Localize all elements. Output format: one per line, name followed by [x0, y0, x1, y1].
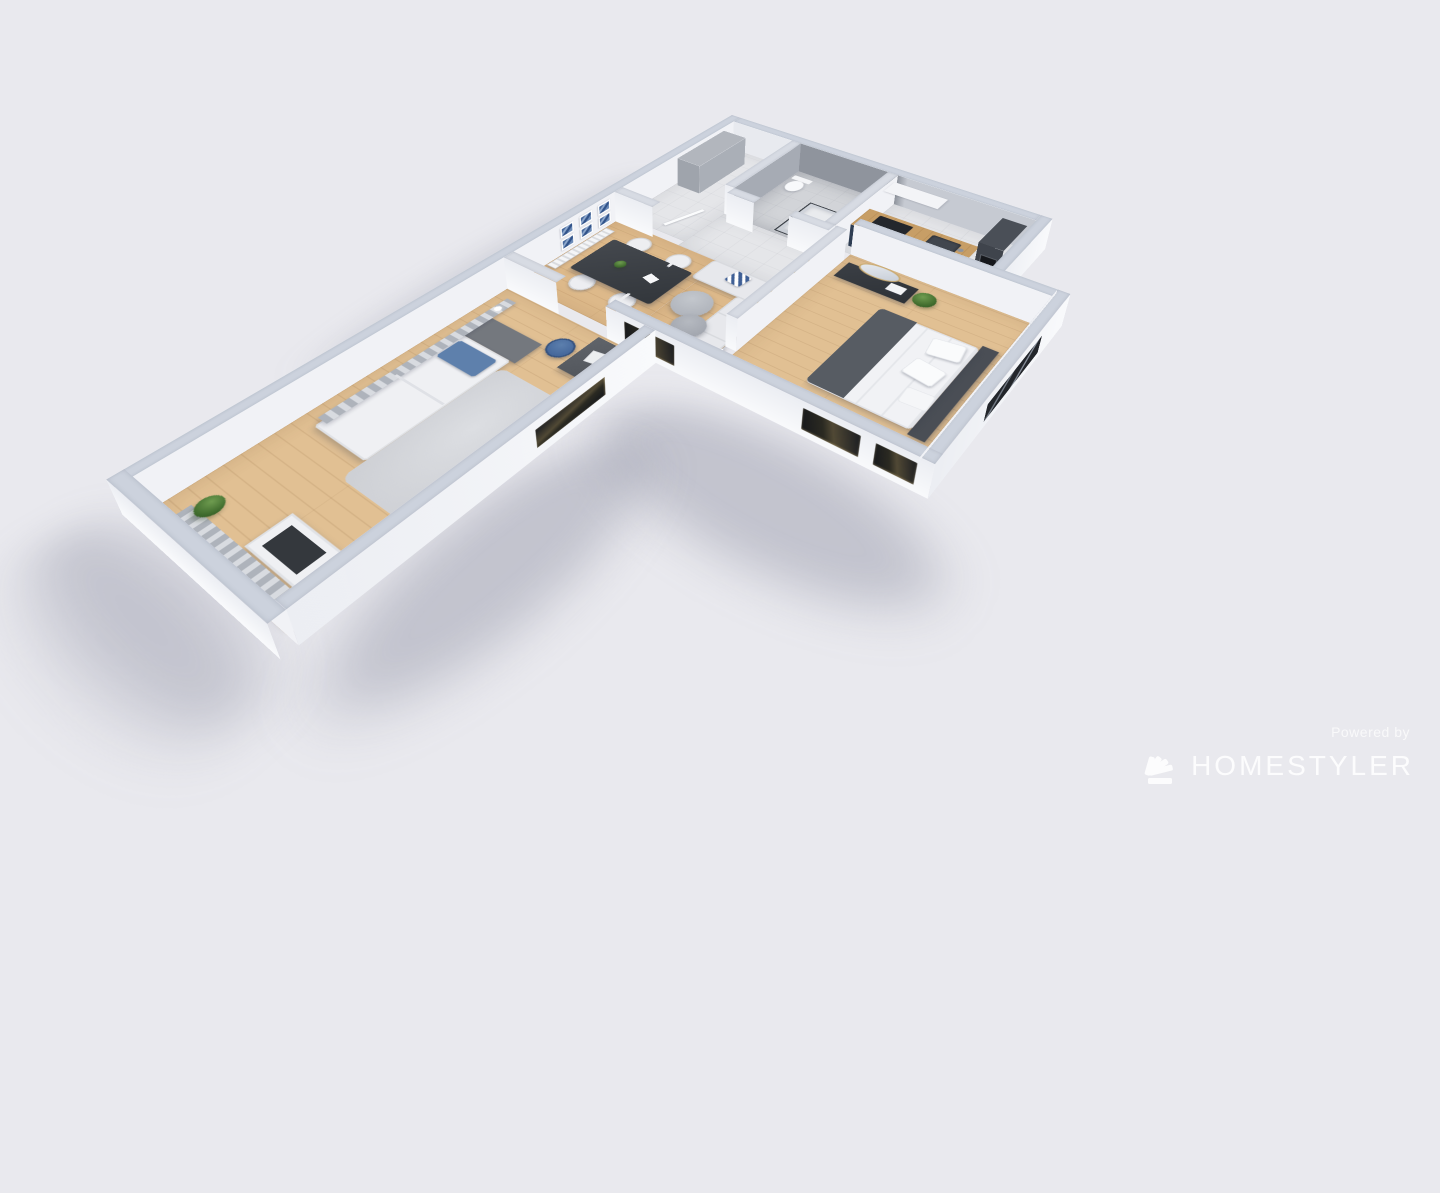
watermark: Powered by HOMESTYLER: [1141, 724, 1414, 786]
floorplan-viewport[interactable]: [0, 0, 1440, 810]
brand-name: HOMESTYLER: [1191, 750, 1414, 782]
blue-art-print: [582, 224, 592, 237]
blue-art-print: [600, 213, 610, 226]
powered-by-label: Powered by: [1141, 724, 1410, 740]
homestyler-fan-logo-icon: [1141, 746, 1181, 786]
blue-art-print: [563, 235, 574, 248]
faucet: [956, 248, 965, 253]
apartment-3d-plan: [131, 149, 1101, 940]
